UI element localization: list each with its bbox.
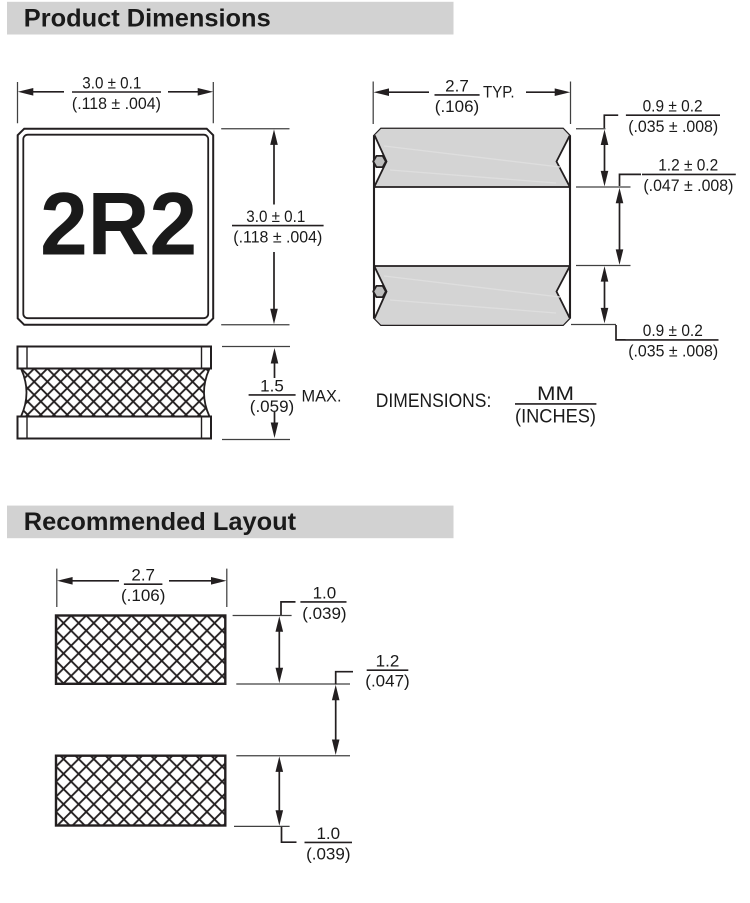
- svg-text:3.0 ± 0.1: 3.0 ± 0.1: [246, 207, 305, 226]
- svg-text:TYP.: TYP.: [483, 83, 515, 102]
- svg-text:2.7: 2.7: [445, 76, 469, 95]
- svg-text:MM: MM: [537, 383, 574, 405]
- svg-text:(INCHES): (INCHES): [515, 406, 596, 428]
- svg-text:(.047): (.047): [365, 672, 409, 691]
- svg-text:1.0: 1.0: [316, 824, 340, 843]
- svg-text:(.106): (.106): [121, 586, 165, 605]
- svg-text:1.2: 1.2: [376, 652, 400, 671]
- svg-text:(.118 ± .004): (.118 ± .004): [72, 94, 161, 113]
- svg-text:DIMENSIONS:: DIMENSIONS:: [376, 390, 492, 412]
- svg-text:(.035 ± .008): (.035 ± .008): [628, 341, 718, 360]
- svg-text:(.106): (.106): [435, 97, 479, 116]
- svg-text:(.039): (.039): [302, 604, 346, 623]
- svg-text:2.7: 2.7: [131, 566, 155, 585]
- svg-text:(.059): (.059): [250, 397, 294, 416]
- svg-text:(.039): (.039): [306, 844, 350, 863]
- svg-text:Recommended Layout: Recommended Layout: [24, 508, 297, 536]
- svg-text:0.9 ± 0.2: 0.9 ± 0.2: [643, 321, 703, 340]
- svg-text:1.2 ± 0.2: 1.2 ± 0.2: [658, 156, 718, 175]
- svg-text:3.0 ± 0.1: 3.0 ± 0.1: [82, 73, 141, 92]
- svg-text:2R2: 2R2: [40, 174, 197, 274]
- svg-text:(.047 ± .008): (.047 ± .008): [643, 176, 733, 195]
- svg-text:MAX.: MAX.: [302, 387, 342, 406]
- svg-text:(.118 ± .004): (.118 ± .004): [233, 228, 322, 247]
- svg-text:Product Dimensions: Product Dimensions: [24, 5, 271, 33]
- svg-text:(.035 ± .008): (.035 ± .008): [628, 117, 718, 136]
- svg-text:1.0: 1.0: [313, 583, 337, 602]
- svg-text:0.9 ± 0.2: 0.9 ± 0.2: [643, 97, 703, 116]
- svg-text:1.5: 1.5: [260, 376, 284, 395]
